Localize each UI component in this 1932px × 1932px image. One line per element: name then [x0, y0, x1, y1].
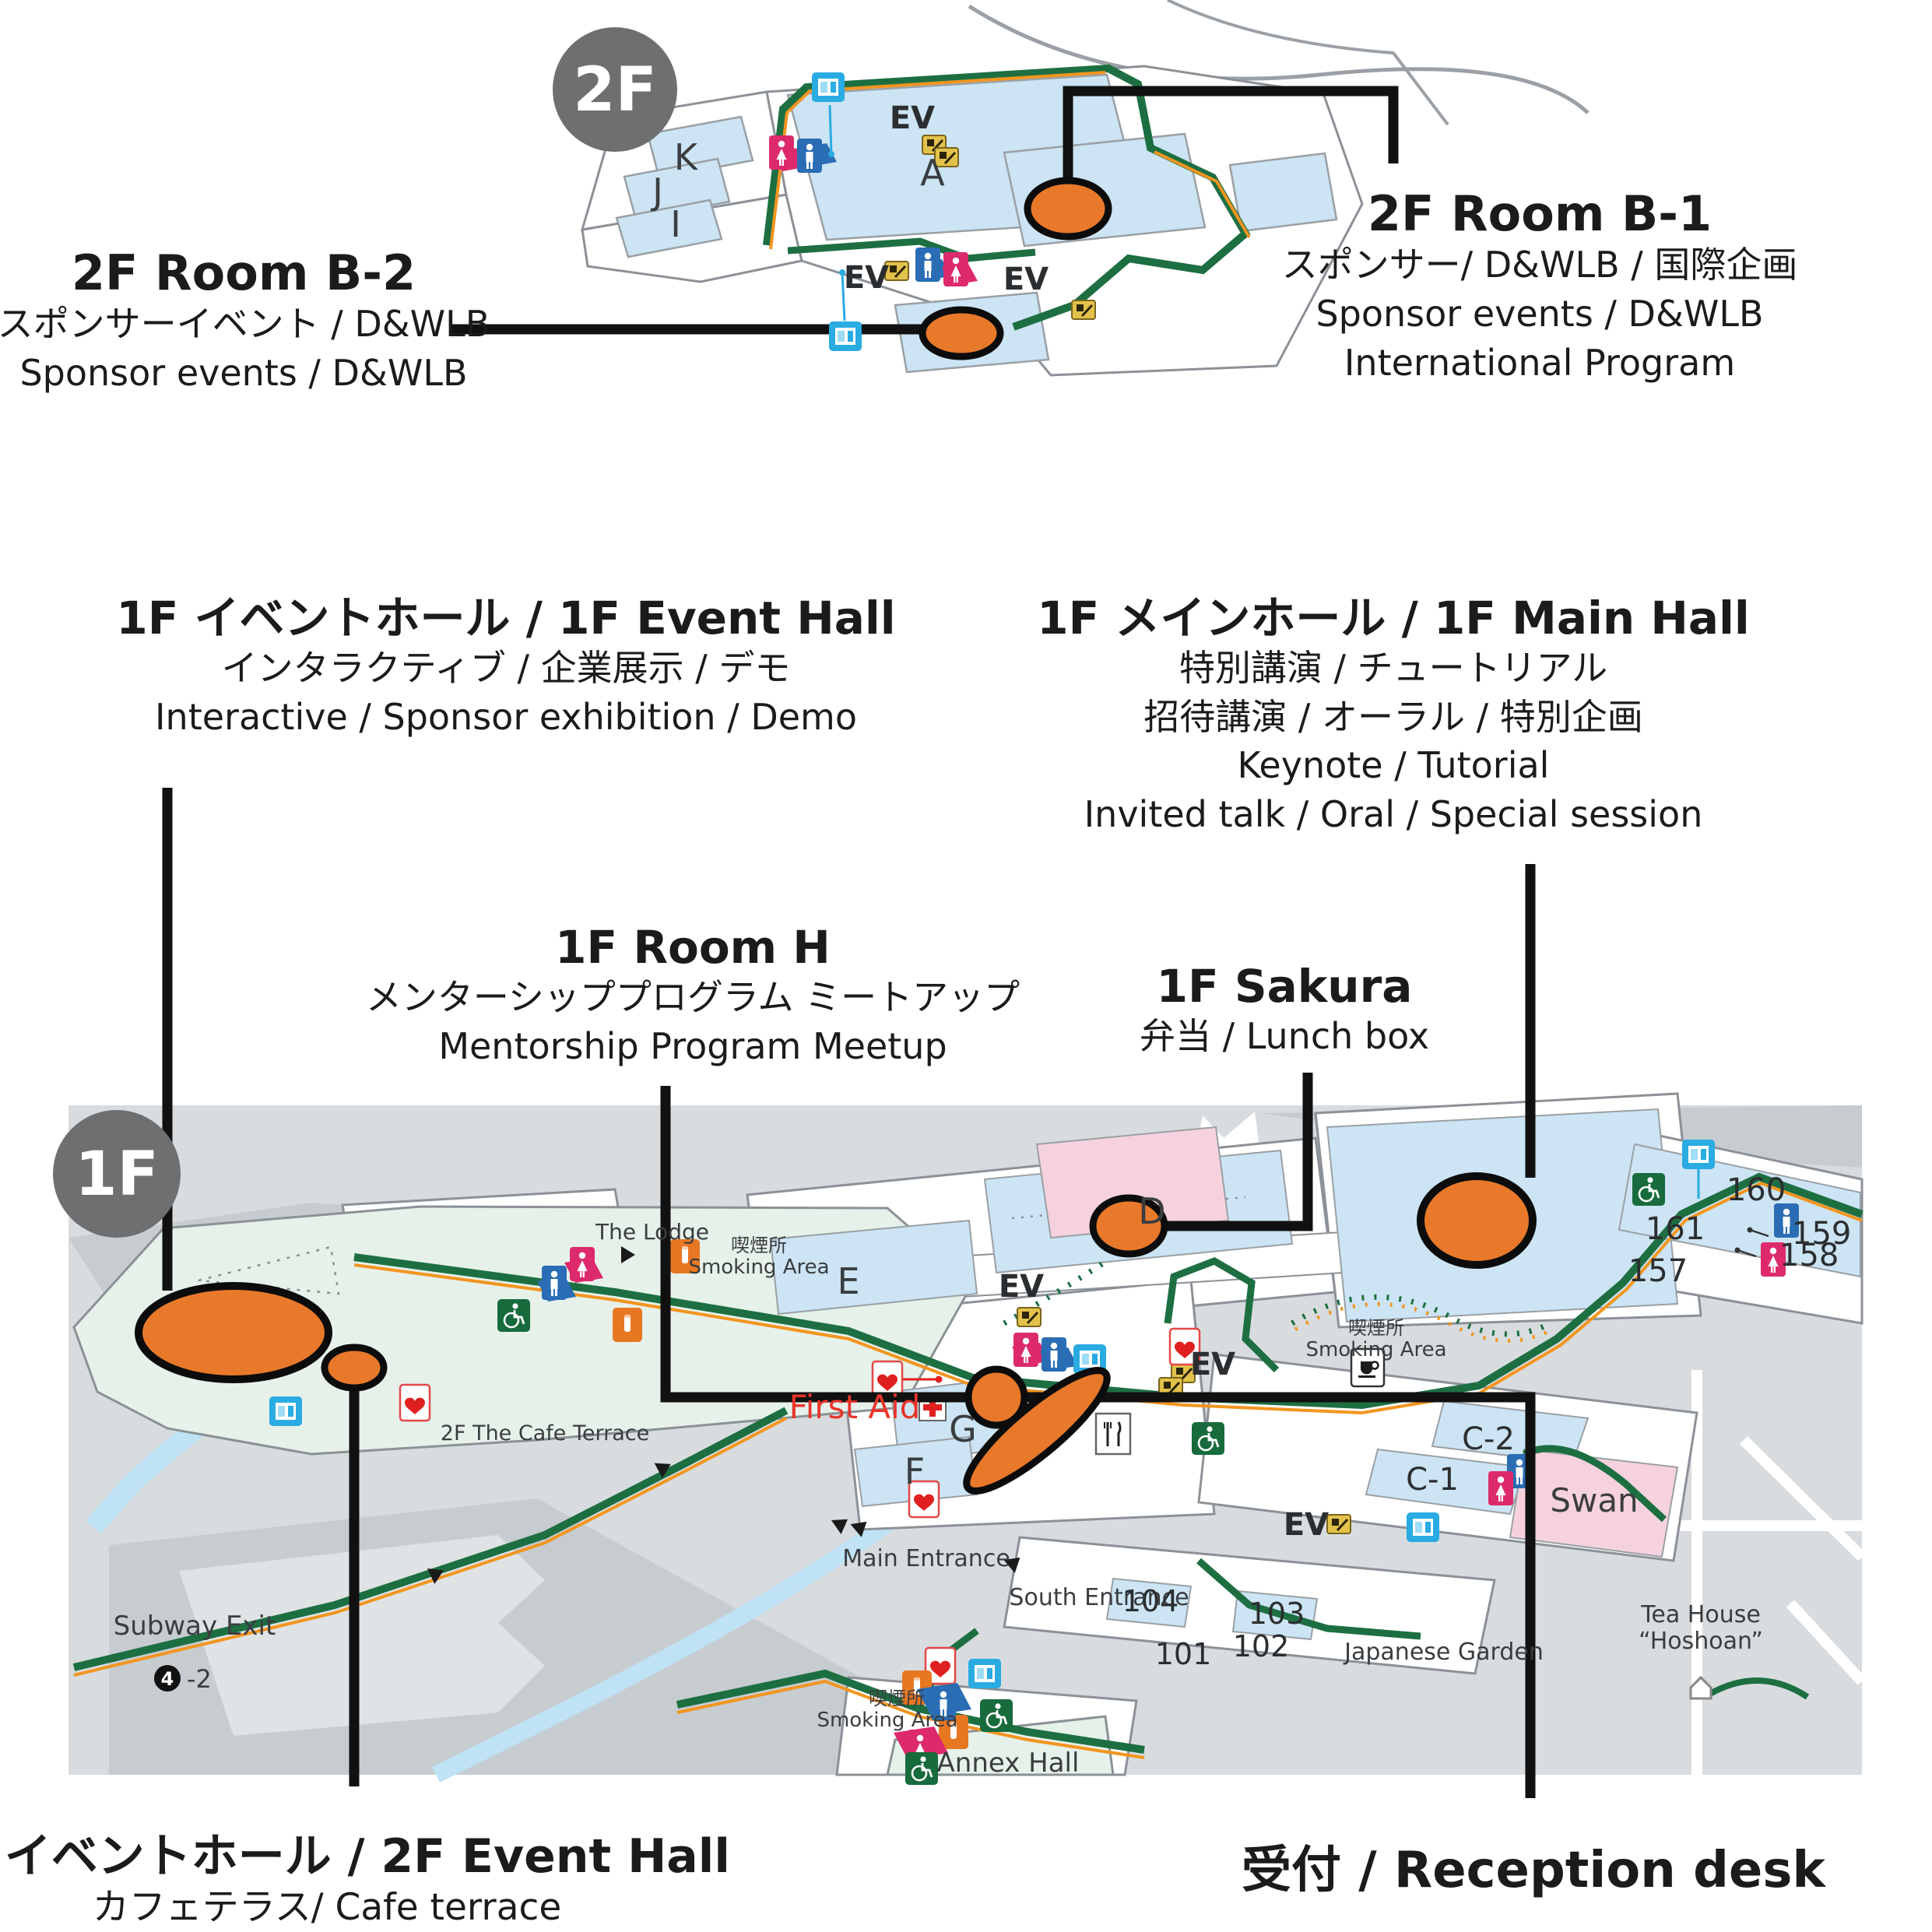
room-158-label: 158 [1779, 1238, 1839, 1273]
leader-dot [1748, 1228, 1753, 1233]
label-room-b2-en: Sponsor events / D&WLB [0, 349, 490, 398]
wheelchair-icon [980, 1699, 1013, 1732]
female-restroom-icon [769, 135, 794, 170]
japanese-garden-label: Japanese Garden [1343, 1639, 1544, 1666]
label-room-b1-en2: International Program [1282, 339, 1798, 388]
female-restroom-icon [1488, 1471, 1513, 1505]
floor2-badge-label: 2F [573, 55, 657, 125]
label-main-hall-jp1: 特別講演 / チュートリアル [1037, 644, 1750, 693]
room-103-label: 103 [1249, 1597, 1305, 1631]
annex-hall-label: Annex Hall [937, 1748, 1080, 1779]
label-sakura-sub: 弁当 / Lunch box [1140, 1012, 1429, 1061]
vending-icon [269, 1396, 302, 1426]
cafe-terrace-label: 2F The Cafe Terrace [441, 1421, 649, 1445]
room-k-label: K [674, 136, 699, 178]
subway-exit-suffix: -2 [187, 1664, 212, 1694]
label-room-b2: 2F Room B-2 スポンサーイベント / D&WLB Sponsor ev… [0, 246, 490, 398]
label-room-h-title: 1F Room H [366, 922, 1020, 973]
room-e-label: E [837, 1260, 859, 1302]
male-restroom-icon [1042, 1337, 1066, 1372]
wheelchair-icon [1632, 1173, 1665, 1206]
label-room-b1-title: 2F Room B-1 [1282, 187, 1798, 241]
wheelchair-icon [497, 1299, 530, 1332]
label-main-hall-title: 1F メインホール / 1F Main Hall [1037, 593, 1750, 644]
ev-label: EV [1003, 262, 1049, 297]
label-sakura-title: 1F Sakura [1140, 961, 1429, 1012]
label-sakura: 1F Sakura 弁当 / Lunch box [1140, 961, 1429, 1061]
label-event-hall-jp: インタラクティブ / 企業展示 / デモ [116, 644, 895, 693]
label-room-b1: 2F Room B-1 スポンサー/ D&WLB / 国際企画 Sponsor … [1282, 187, 1798, 387]
female-restroom-icon [1013, 1333, 1038, 1367]
vending-leader [830, 105, 831, 154]
aed-icon [400, 1385, 430, 1421]
male-restroom-icon [797, 139, 822, 173]
label-main-hall-jp2: 招待講演 / オーラル / 特別企画 [1037, 693, 1750, 742]
escalator-icon [1017, 1308, 1041, 1326]
restaurant-icon [1096, 1414, 1130, 1454]
lodge-label: The Lodge [595, 1219, 709, 1245]
room-157-label: 157 [1628, 1253, 1688, 1289]
room-f-label: F [905, 1450, 925, 1492]
room-160-label: 160 [1727, 1172, 1786, 1208]
male-restroom-icon [915, 248, 940, 282]
vending-icon [1682, 1140, 1715, 1169]
label-reception: 受付 / Reception desk [1242, 1843, 1825, 1899]
ev-label: EV [844, 260, 889, 296]
marker-1f-main-hall [1421, 1176, 1533, 1265]
vending-icon [968, 1659, 1001, 1688]
label-room-b1-jp: スポンサー/ D&WLB / 国際企画 [1282, 241, 1798, 290]
marker-2f-room-b1 [1027, 181, 1108, 237]
wheelchair-icon [1192, 1422, 1224, 1455]
swan-label: Swan [1550, 1481, 1638, 1519]
label-event-hall-2f: 2F イベントホール / 2F Event Hall カフェテラス/ Cafe … [0, 1831, 730, 1932]
tea-house-name-label: “Hoshoan” [1639, 1628, 1763, 1655]
marker-1f-event-hall [139, 1286, 328, 1379]
marker-2f-event-hall-cafe [325, 1347, 384, 1388]
smoking-en-label: Smoking Area [1305, 1338, 1446, 1361]
main-entrance-label: Main Entrance [842, 1545, 1010, 1572]
vending-icon [1407, 1512, 1439, 1542]
room-g-label: G [949, 1408, 977, 1450]
ev-label: EV [999, 1269, 1044, 1305]
smoking-en-label: Smoking Area [688, 1256, 829, 1279]
room-101-label: 101 [1155, 1637, 1212, 1671]
label-event-hall: 1F イベントホール / 1F Event Hall インタラクティブ / 企業… [116, 593, 895, 741]
label-room-h-jp: メンターシッププログラム ミートアップ [366, 973, 1020, 1022]
marker-2f-room-b2 [922, 310, 1000, 357]
smoking-jp-label: 喫煙所 [869, 1688, 925, 1709]
first-aid-label: First Aid [789, 1388, 921, 1426]
floor1-badge-label: 1F [75, 1140, 159, 1210]
room-i-label: I [670, 203, 681, 245]
label-event-hall-2f-sub: カフェテラス/ Cafe terrace [0, 1883, 730, 1932]
label-reception-text: 受付 / Reception desk [1242, 1843, 1825, 1899]
smoking-icon [613, 1308, 642, 1342]
room-104-label: 104 [1122, 1584, 1179, 1618]
subway-icon: 4 [154, 1665, 181, 1691]
room-a-label: A [920, 152, 945, 194]
female-restroom-icon [943, 252, 968, 286]
label-room-b1-en1: Sponsor events / D&WLB [1282, 290, 1798, 339]
ev-label: EV [890, 100, 935, 136]
subway-number: 4 [161, 1668, 174, 1690]
subway-exit-label: Subway Exit [114, 1611, 276, 1642]
label-event-hall-title: 1F イベントホール / 1F Event Hall [116, 593, 895, 644]
smoking-jp-label: 喫煙所 [731, 1235, 787, 1256]
room-j-label: J [650, 170, 663, 213]
vending-icon [812, 72, 845, 102]
tea-house-label: Tea House [1640, 1601, 1761, 1628]
venue-floor-map: K J I A EV EV EV 2F [0, 0, 1932, 1932]
vending-icon [829, 321, 862, 351]
label-event-hall-en: Interactive / Sponsor exhibition / Demo [116, 693, 895, 742]
room-c1-label: C-1 [1406, 1462, 1459, 1498]
ev-label: EV [1284, 1507, 1329, 1543]
label-room-b2-jp: スポンサーイベント / D&WLB [0, 300, 490, 349]
label-room-b2-title: 2F Room B-2 [0, 246, 490, 300]
room-d-label: D [1138, 1190, 1165, 1232]
label-main-hall: 1F メインホール / 1F Main Hall 特別講演 / チュートリアル … [1037, 593, 1750, 838]
room-c2-label: C-2 [1462, 1421, 1515, 1457]
leader-dot [1735, 1248, 1741, 1253]
label-main-hall-en2: Invited talk / Oral / Special session [1037, 790, 1750, 839]
escalator-icon [1072, 300, 1095, 319]
label-main-hall-en1: Keynote / Tutorial [1037, 741, 1750, 790]
ev-label: EV [1190, 1347, 1235, 1382]
label-room-h: 1F Room H メンターシッププログラム ミートアップ Mentorship… [366, 922, 1020, 1070]
label-room-h-en: Mentorship Program Meetup [366, 1022, 1020, 1071]
smoking-en-label: Smoking Area [817, 1709, 957, 1732]
vending-leader-dot [828, 151, 834, 157]
smoking-jp-label: 喫煙所 [1348, 1317, 1404, 1339]
aed-leader-dot [936, 1376, 943, 1383]
room-161-label: 161 [1646, 1211, 1705, 1247]
wheelchair-icon [905, 1752, 938, 1785]
room-102-label: 102 [1233, 1629, 1290, 1663]
escalator-icon [1327, 1515, 1351, 1533]
male-restroom-icon [542, 1266, 567, 1300]
female-restroom-icon [570, 1247, 595, 1281]
label-event-hall-2f-title: 2F イベントホール / 2F Event Hall [0, 1831, 730, 1883]
